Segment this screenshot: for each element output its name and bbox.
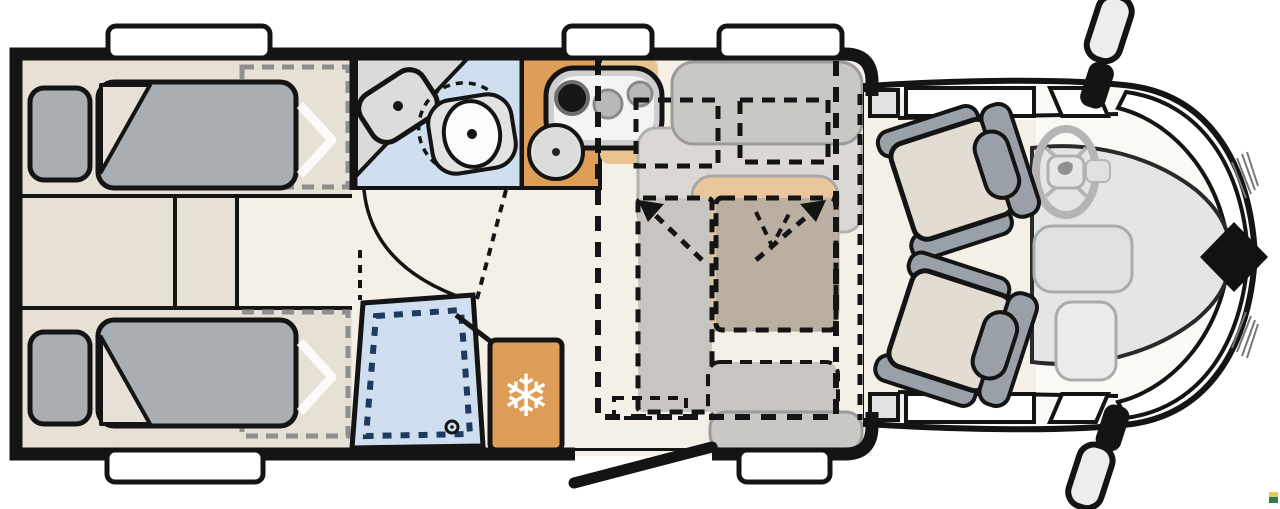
cab bbox=[860, 0, 1268, 509]
bed-cushion-over-table-dashed bbox=[716, 198, 836, 330]
side-seat-cushion-dashed bbox=[638, 198, 712, 412]
bench-backrest-bottom bbox=[710, 412, 862, 450]
steering-column bbox=[1086, 160, 1110, 182]
shower-drain-dot bbox=[450, 425, 454, 429]
pillow bbox=[30, 332, 90, 424]
door-window-2 bbox=[1050, 394, 1108, 422]
kitchen-sink-drain bbox=[552, 148, 560, 156]
window-top-kitchen bbox=[564, 26, 652, 58]
snowflake-icon: ❄ bbox=[502, 362, 551, 430]
passenger-dash-tray bbox=[1056, 302, 1116, 380]
pillow bbox=[30, 88, 90, 180]
bench-cushion-bottom-dashed bbox=[708, 362, 838, 418]
window-bottom-dinette bbox=[739, 450, 830, 482]
bed-mid-cabinet bbox=[16, 196, 237, 308]
watermark-bottom bbox=[1269, 497, 1278, 503]
window-top-dinette bbox=[719, 26, 842, 58]
window-bottom-bedroom bbox=[107, 450, 263, 482]
window-top-bedroom bbox=[108, 26, 270, 58]
watermark bbox=[1269, 492, 1278, 503]
mirror-head bbox=[1083, 0, 1136, 65]
burner-1 bbox=[556, 82, 588, 114]
mirror-head bbox=[1064, 441, 1116, 509]
floorplan-canvas: ❄ bbox=[0, 0, 1280, 509]
motorhome-floorplan: ❄ bbox=[0, 0, 1280, 509]
watermark-top bbox=[1269, 492, 1278, 497]
center-console bbox=[1034, 226, 1132, 292]
